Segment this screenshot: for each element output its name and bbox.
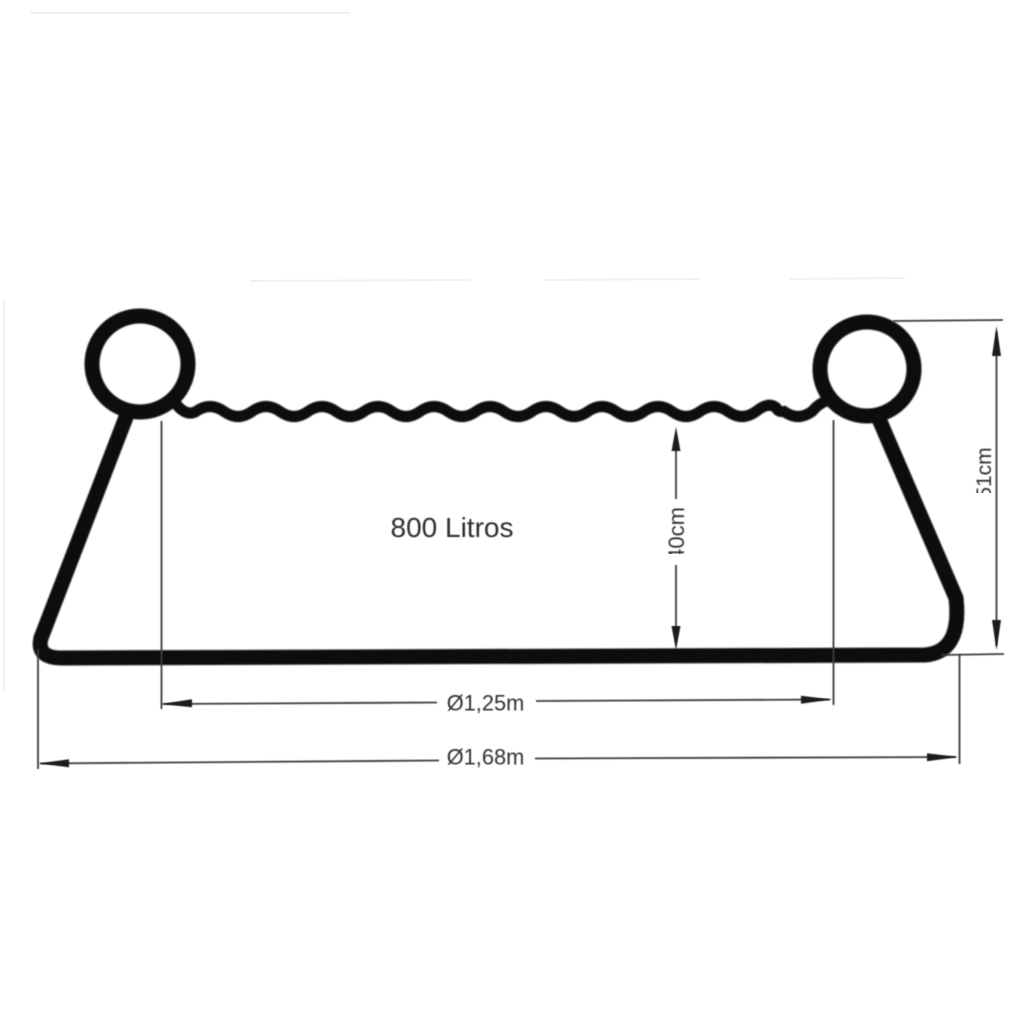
svg-text:40cm: 40cm bbox=[664, 507, 689, 561]
svg-text:51cm: 51cm bbox=[973, 447, 996, 498]
svg-text:800 Litros: 800 Litros bbox=[391, 512, 514, 543]
svg-text:Ø1,68m: Ø1,68m bbox=[447, 745, 525, 770]
svg-text:Ø1,25m: Ø1,25m bbox=[447, 691, 525, 716]
